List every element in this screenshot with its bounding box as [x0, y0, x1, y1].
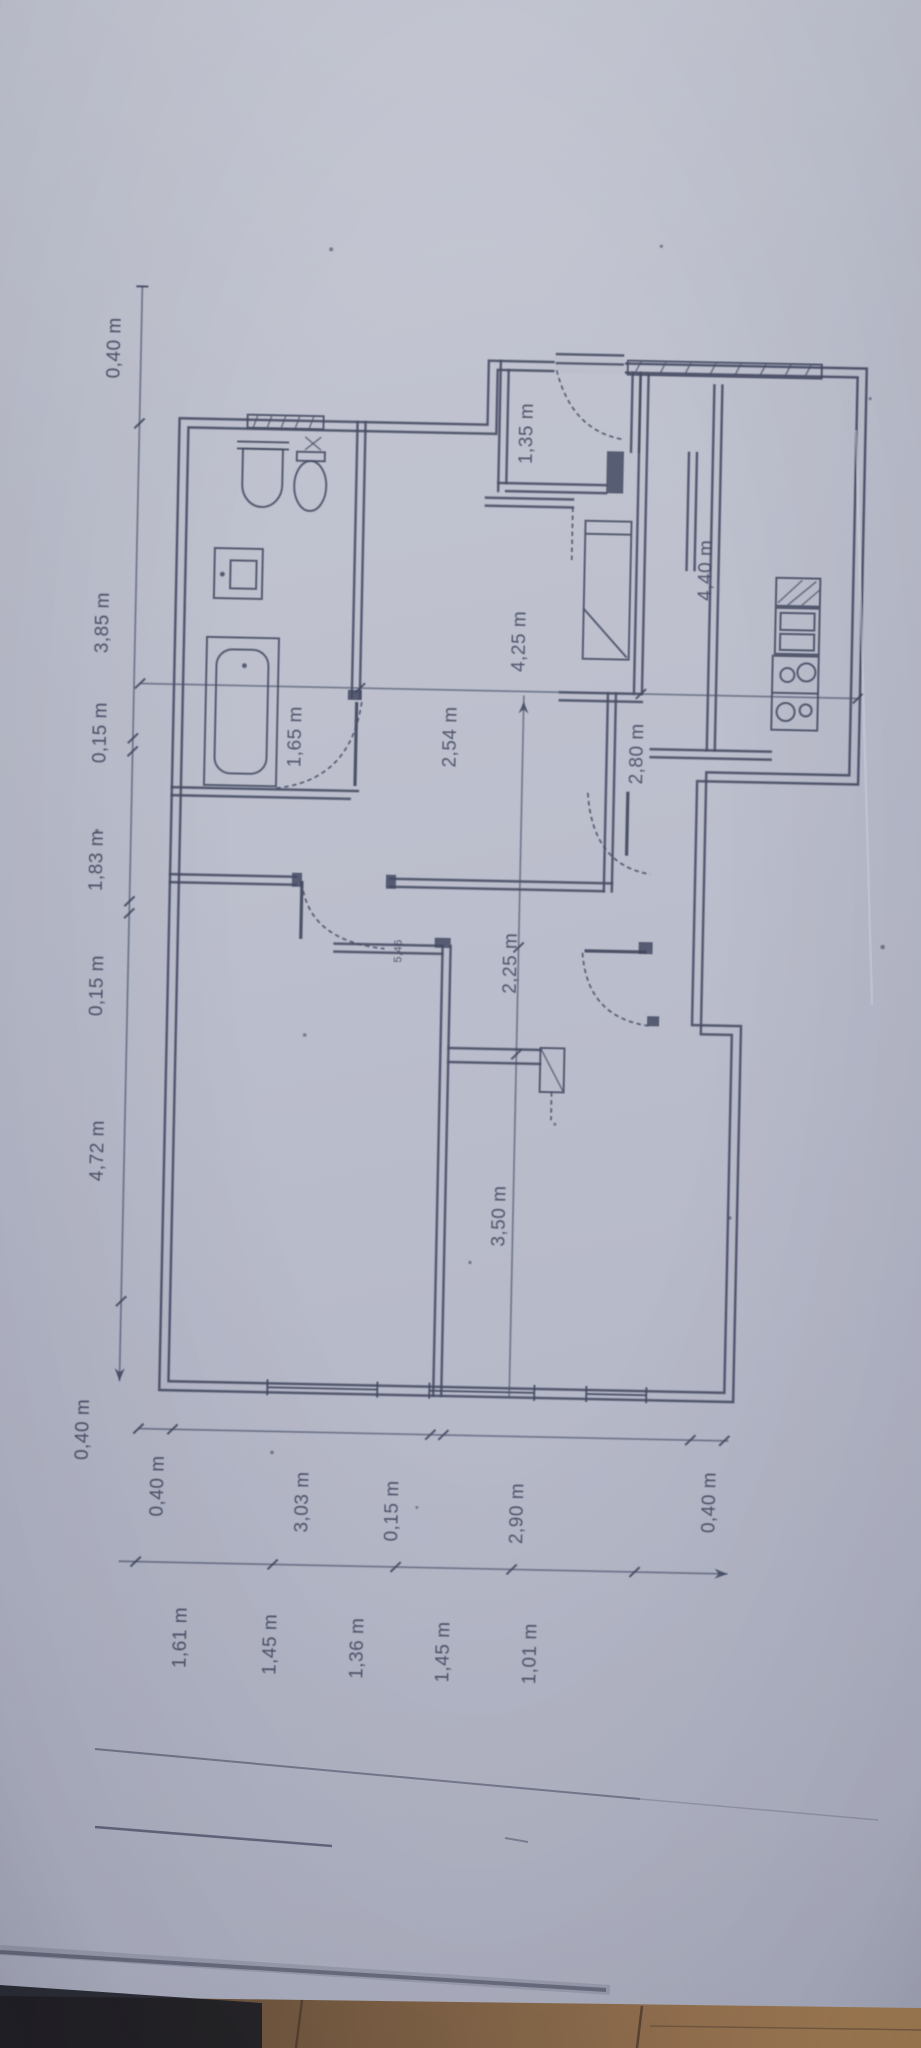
toilet-icon [294, 437, 328, 512]
room-dimension-labels: 1,35 m 4,40 m 4,25 m 2,54 m 1,65 m 2,80 … [274, 398, 720, 1251]
dim-label: 0,40 m [698, 1472, 720, 1534]
dim-label-hall-width: 2,54 m [439, 706, 461, 768]
stove-icon [771, 656, 819, 731]
kitchen-sink-icon [775, 608, 820, 655]
left-dimension-chain: 0,40 m 3,85 m 0,15 m 1,83 m 0,15 m 4,72 … [72, 285, 149, 1460]
dim-label: 1,01 m [519, 1623, 541, 1685]
dim-label: 0,40 m [103, 317, 125, 379]
dim-label: 1,83 m [86, 830, 108, 892]
dim-label: 2,90 m [506, 1483, 528, 1545]
floor-plan-drawing: 0,40 m 3,85 m 0,15 m 1,83 m 0,15 m 4,72 … [0, 0, 921, 2048]
wardrobe [447, 1046, 564, 1120]
room-right-door [581, 951, 654, 1026]
bedroom-door [586, 791, 652, 874]
paper-bottom-edge [0, 1950, 610, 1990]
dim-label: 0,40 m [72, 1399, 94, 1461]
sink-icon [236, 441, 289, 507]
room-left-door [301, 881, 386, 949]
dim-label: 4,72 m [87, 1120, 109, 1182]
dim-label-room-width: 3,50 m [488, 1185, 510, 1247]
dim-label: 3,85 m [92, 592, 114, 654]
plan-sheet-content: 0,40 m 3,85 m 0,15 m 1,83 m 0,15 m 4,72 … [67, 233, 899, 1692]
washing-machine-icon [214, 548, 263, 599]
floor-shadow [0, 1985, 262, 2048]
bottom-outer-dimension-chain: 0,40 m 3,03 m 0,15 m 2,90 m 0,40 m [131, 1423, 729, 1548]
dim-label: 1,45 m [432, 1621, 454, 1683]
bottom-inner-dimension-chain: 1,61 m 1,45 m 1,36 m 1,45 m 1,01 m [116, 1556, 727, 1688]
wood-floor [0, 1985, 921, 2048]
bathroom-window-band [247, 415, 323, 430]
photographed-floor-plan: 0,40 m 3,85 m 0,15 m 1,83 m 0,15 m 4,72 … [0, 0, 921, 2048]
entry-door-opening [555, 357, 625, 374]
fridge-icon [776, 578, 821, 607]
dim-label-corridor-width: 2,25 m [500, 933, 522, 995]
bathtub-icon [204, 637, 279, 786]
dim-label: 0,15 m [381, 1480, 403, 1542]
dim-label: 0,40 m [147, 1455, 169, 1517]
dim-label-door-note: 5,46 [392, 939, 404, 963]
dim-label-entry: 1,35 m [516, 403, 538, 465]
dim-label-bathroom-width: 1,65 m [284, 706, 306, 768]
dim-label-hall-depth: 4,25 m [508, 611, 530, 673]
dim-label-kitchen-depth: 4,40 m [695, 540, 717, 602]
dim-label-kitchen-width: 2,80 m [626, 723, 648, 785]
dim-label: 1,45 m [259, 1614, 281, 1676]
dim-label: 1,36 m [346, 1617, 368, 1679]
entry-door-arc [555, 370, 624, 439]
dim-label: 1,61 m [169, 1607, 191, 1669]
dim-label: 3,03 m [291, 1471, 313, 1533]
paper-fold-lines [95, 430, 878, 1846]
interior-walls [159, 354, 779, 1402]
dim-label: 0,15 m [86, 955, 108, 1017]
bed-icon [583, 521, 632, 660]
dim-label: 0,15 m [89, 702, 111, 764]
